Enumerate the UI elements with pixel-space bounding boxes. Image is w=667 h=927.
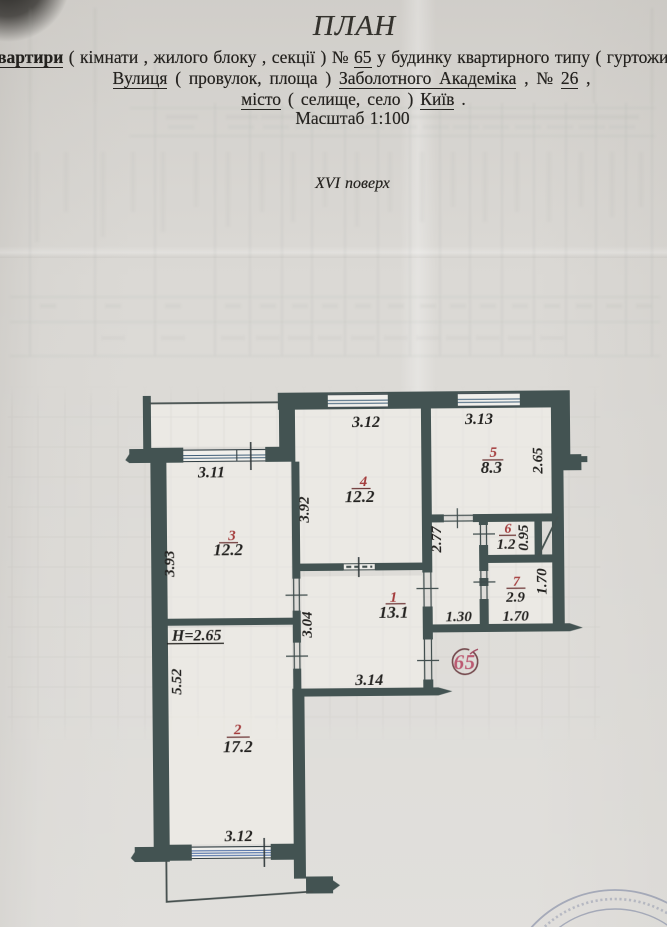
svg-text:3.13: 3.13 (464, 411, 493, 428)
svg-text:17.2: 17.2 (223, 737, 253, 756)
svg-text:1.70: 1.70 (503, 609, 530, 625)
svg-text:0.95: 0.95 (516, 524, 532, 551)
svg-text:2.9: 2.9 (505, 590, 525, 606)
svg-text:3.04: 3.04 (300, 611, 316, 639)
svg-text:3.92: 3.92 (297, 496, 313, 524)
svg-text:65: 65 (454, 650, 476, 674)
svg-text:7: 7 (513, 575, 521, 590)
svg-text:3.93: 3.93 (162, 550, 178, 578)
svg-text:1.2: 1.2 (497, 537, 516, 553)
svg-text:6: 6 (504, 522, 511, 537)
svg-text:8.3: 8.3 (481, 458, 503, 477)
svg-text:13.1: 13.1 (379, 603, 409, 622)
svg-text:1.30: 1.30 (446, 609, 473, 625)
svg-text:1.70: 1.70 (534, 568, 550, 595)
svg-text:3.12: 3.12 (224, 828, 253, 845)
svg-text:3.11: 3.11 (197, 464, 225, 481)
svg-text:2: 2 (233, 722, 242, 738)
svg-text:3.12: 3.12 (351, 414, 380, 431)
svg-text:5.52: 5.52 (169, 668, 185, 695)
svg-text:3.14: 3.14 (354, 672, 383, 689)
svg-text:2.77: 2.77 (429, 526, 445, 554)
svg-text:12.2: 12.2 (213, 540, 243, 559)
svg-text:12.2: 12.2 (345, 487, 375, 506)
svg-text:H=2.65: H=2.65 (171, 627, 222, 644)
svg-text:2.65: 2.65 (530, 447, 546, 475)
